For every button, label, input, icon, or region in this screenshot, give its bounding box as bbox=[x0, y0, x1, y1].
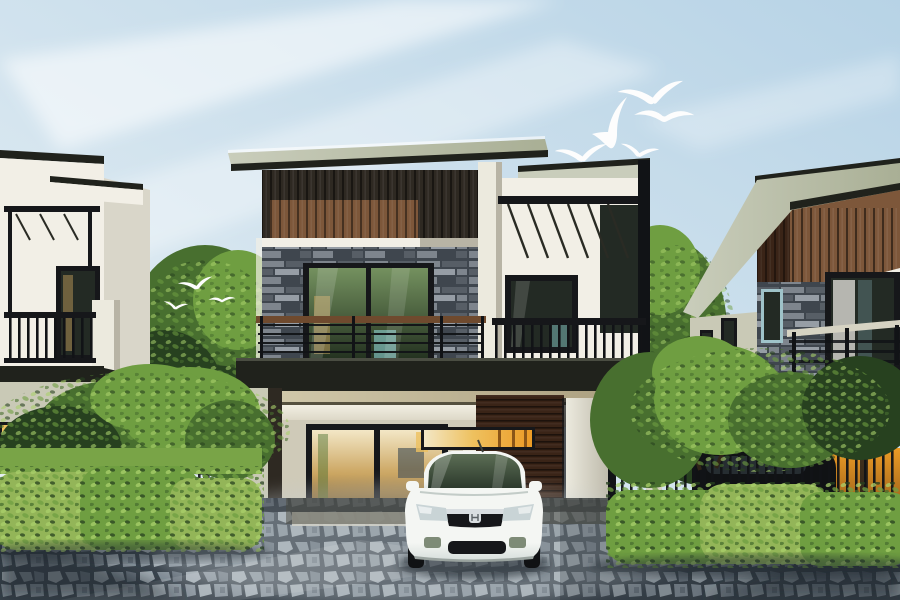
car-mirror-left bbox=[406, 481, 419, 491]
rendered-photo bbox=[0, 0, 900, 600]
right-hedge bbox=[590, 482, 900, 577]
car-mirror-right bbox=[529, 481, 542, 491]
car-intake bbox=[448, 541, 506, 554]
car-foglight-left bbox=[424, 537, 441, 548]
car-foglight-right bbox=[509, 537, 526, 548]
right-house-small-window bbox=[761, 289, 783, 343]
slit-window bbox=[421, 427, 535, 450]
upper-wood-band bbox=[262, 170, 480, 247]
carport-eave bbox=[236, 358, 652, 405]
left-hedge bbox=[0, 466, 270, 562]
scene-canvas bbox=[0, 0, 900, 600]
